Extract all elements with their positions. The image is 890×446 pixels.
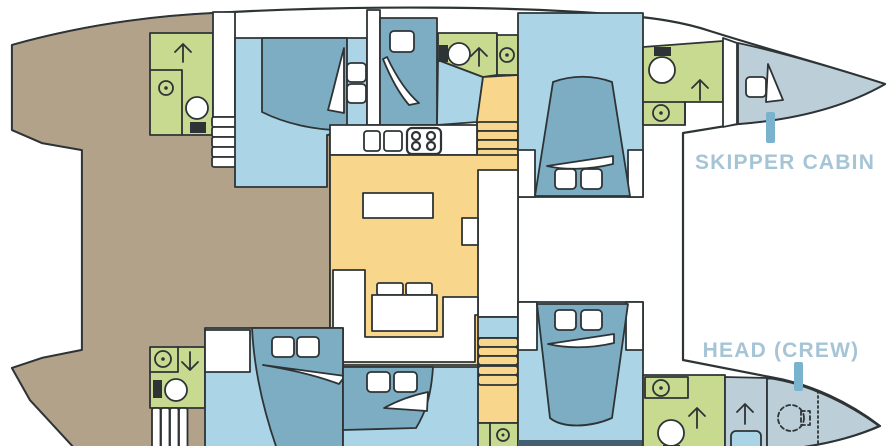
pillow-icon [272, 337, 294, 357]
galley-island [363, 193, 433, 218]
sofa-cushion [377, 283, 403, 295]
toilet-cistern-icon [654, 47, 671, 56]
sink-dot-icon [161, 357, 165, 361]
stove-icon [407, 128, 441, 154]
pillow-icon [581, 310, 602, 330]
stair-step [478, 366, 518, 375]
toilet-icon [448, 43, 470, 65]
pillow-icon [297, 337, 319, 357]
deck-plan-svg: SKIPPER CABIN HEAD (CREW) [0, 0, 890, 446]
galley-counter [330, 125, 477, 155]
pillow-icon [347, 84, 366, 103]
catamaran-deck-plan: SKIPPER CABIN HEAD (CREW) [0, 0, 890, 446]
pillow-icon [347, 63, 366, 82]
pillow-icon [555, 310, 576, 330]
toilet-cistern-icon [153, 380, 162, 398]
pillow-icon [394, 372, 417, 392]
hatch-icon [731, 431, 761, 446]
bow-corridor [723, 38, 737, 127]
sink-dot-icon [659, 111, 663, 115]
shower-dot-icon [505, 53, 509, 57]
stair-step [179, 408, 188, 446]
stair-step [477, 131, 518, 140]
toilet-cistern-icon [439, 45, 448, 62]
stair-step [161, 408, 170, 446]
pillow-icon [367, 372, 390, 392]
toilet-icon [658, 420, 684, 446]
side-table [628, 150, 643, 197]
galley-sink-icon [364, 131, 380, 151]
head-crew-label: HEAD (CREW) [703, 339, 860, 362]
skipper-cabin-pointer-tick [766, 112, 775, 143]
toilet-cistern-icon [190, 122, 206, 133]
hull-bottom-strip [518, 440, 645, 446]
crew-head-bow [767, 378, 879, 446]
side-table [626, 302, 643, 350]
skipper-cabin-label: SKIPPER CABIN [695, 151, 875, 174]
stair-step [478, 347, 518, 356]
stair-step [170, 408, 179, 446]
stair-step [478, 338, 518, 347]
stair-step [477, 122, 518, 131]
side-table [518, 302, 537, 350]
nav-station [478, 170, 518, 317]
side-table [518, 150, 535, 197]
galley-sink-icon [384, 131, 402, 151]
sofa-cushion [406, 283, 432, 295]
pillow-icon [555, 169, 576, 189]
pillow-icon [581, 169, 602, 189]
wardrobe [205, 330, 250, 372]
stair-landing [478, 317, 518, 338]
stair-step [478, 375, 518, 385]
toilet-icon [165, 379, 187, 401]
stair-step [478, 356, 518, 365]
cabin-divider-wall [367, 10, 380, 125]
head-crew-pointer-tick [794, 362, 803, 391]
sink-dot-icon [659, 386, 663, 390]
pillow-icon [390, 31, 414, 52]
stair-step [152, 408, 161, 446]
stair-step [477, 140, 518, 149]
hatch-icon [746, 77, 766, 97]
stairs-port-aft [152, 408, 188, 446]
nav-seat [462, 218, 478, 245]
sink-dot-icon [164, 86, 168, 90]
toilet-icon [186, 97, 208, 119]
toilet-icon [649, 57, 675, 83]
wardrobe-strip [213, 12, 235, 117]
stairs-port-companionway [478, 338, 518, 385]
sink-dot-icon [502, 434, 505, 437]
salon-table [372, 295, 437, 331]
